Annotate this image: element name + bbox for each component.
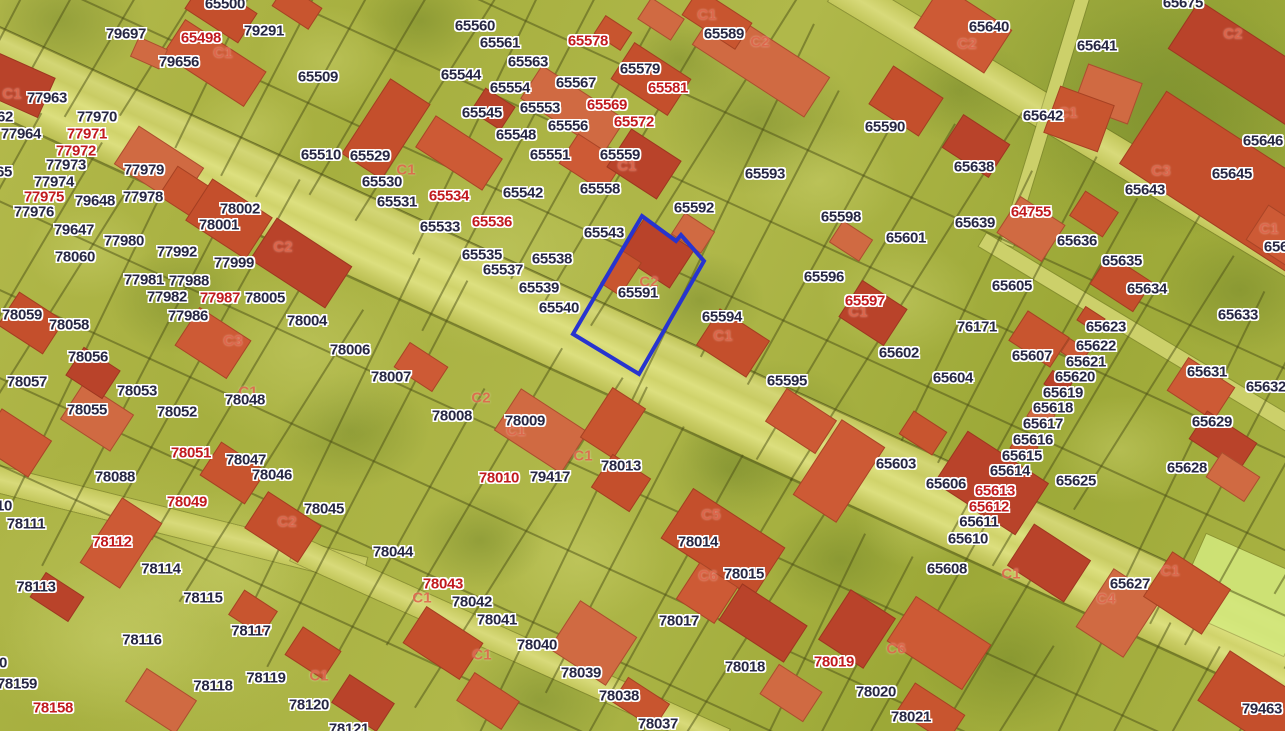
parcel-label-79463[interactable]: 79463 bbox=[1242, 701, 1282, 718]
parcel-label-10[interactable]: 10 bbox=[0, 498, 12, 515]
parcel-label-65558[interactable]: 65558 bbox=[580, 181, 620, 198]
parcel-label-65604[interactable]: 65604 bbox=[933, 370, 973, 387]
parcel-label-78059[interactable]: 78059 bbox=[2, 307, 42, 324]
cadastral-map-canvas[interactable]: C1C1C2C3C1C2C1C1C1C1C2C2C1C1C2C1C1C1C1C5… bbox=[0, 0, 1285, 731]
parcel-label-78158[interactable]: 78158 bbox=[33, 700, 73, 717]
parcel-label-65638[interactable]: 65638 bbox=[954, 159, 994, 176]
parcel-label-65567[interactable]: 65567 bbox=[556, 75, 596, 92]
parcel-label-65540[interactable]: 65540 bbox=[539, 300, 579, 317]
parcel-label-65563[interactable]: 65563 bbox=[508, 54, 548, 71]
parcel-label-65616[interactable]: 65616 bbox=[1013, 432, 1053, 449]
parcel-label-65595[interactable]: 65595 bbox=[767, 373, 807, 390]
parcel-label-65598[interactable]: 65598 bbox=[821, 209, 861, 226]
parcel-label-65645[interactable]: 65645 bbox=[1212, 166, 1252, 183]
parcel-label-65559[interactable]: 65559 bbox=[600, 147, 640, 164]
parcel-label-65594[interactable]: 65594 bbox=[702, 309, 742, 326]
parcel-label-65607[interactable]: 65607 bbox=[1012, 348, 1052, 365]
parcel-label-78015[interactable]: 78015 bbox=[724, 566, 764, 583]
parcel-label-78006[interactable]: 78006 bbox=[330, 342, 370, 359]
parcel-label-65589[interactable]: 65589 bbox=[704, 26, 744, 43]
parcel-label-65631[interactable]: 65631 bbox=[1187, 364, 1227, 381]
parcel-label-65643[interactable]: 65643 bbox=[1125, 182, 1165, 199]
parcel-label-78111[interactable]: 78111 bbox=[7, 516, 46, 533]
parcel-label-78014[interactable]: 78014 bbox=[678, 534, 718, 551]
parcel-label-77982[interactable]: 77982 bbox=[147, 289, 187, 306]
parcel-label-77978[interactable]: 77978 bbox=[123, 189, 163, 206]
parcel-label-65579[interactable]: 65579 bbox=[620, 61, 660, 78]
parcel-label-65500[interactable]: 65500 bbox=[205, 0, 245, 13]
parcel-label-65636[interactable]: 65636 bbox=[1057, 233, 1097, 250]
parcel-label-65633[interactable]: 65633 bbox=[1218, 307, 1258, 324]
parcel-label-65623[interactable]: 65623 bbox=[1086, 319, 1126, 336]
parcel-label-65592[interactable]: 65592 bbox=[674, 200, 714, 217]
parcel-label-65578[interactable]: 65578 bbox=[568, 33, 608, 50]
parcel-label-78159[interactable]: 78159 bbox=[0, 676, 37, 693]
parcel-label-65529[interactable]: 65529 bbox=[350, 148, 390, 165]
parcel-label-78116[interactable]: 78116 bbox=[122, 632, 161, 649]
parcel-label-78088[interactable]: 78088 bbox=[95, 469, 135, 486]
parcel-label-65536[interactable]: 65536 bbox=[472, 214, 512, 231]
parcel-label-78045[interactable]: 78045 bbox=[304, 501, 344, 518]
parcel-label-78037[interactable]: 78037 bbox=[638, 716, 678, 731]
parcel-label-65597[interactable]: 65597 bbox=[845, 293, 885, 310]
parcel-label-78055[interactable]: 78055 bbox=[67, 402, 107, 419]
parcel-label-65602[interactable]: 65602 bbox=[879, 345, 919, 362]
parcel-label-65498[interactable]: 65498 bbox=[181, 30, 221, 47]
parcel-label-62[interactable]: 62 bbox=[0, 109, 13, 126]
parcel-label-65618[interactable]: 65618 bbox=[1033, 400, 1073, 417]
parcel-label-77973[interactable]: 77973 bbox=[46, 157, 86, 174]
parcel-label-65622[interactable]: 65622 bbox=[1076, 338, 1116, 355]
parcel-label-78120[interactable]: 78120 bbox=[289, 697, 329, 714]
parcel-label-78118[interactable]: 78118 bbox=[193, 678, 232, 695]
parcel-label-65646[interactable]: 65646 bbox=[1243, 133, 1283, 150]
parcel-label-78009[interactable]: 78009 bbox=[505, 413, 545, 430]
parcel-label-78052[interactable]: 78052 bbox=[157, 404, 197, 421]
parcel-label-65608[interactable]: 65608 bbox=[927, 561, 967, 578]
parcel-label-78119[interactable]: 78119 bbox=[246, 670, 285, 687]
parcel-label-78117[interactable]: 78117 bbox=[231, 623, 270, 640]
parcel-label-65591[interactable]: 65591 bbox=[618, 285, 658, 302]
parcel-label-78043[interactable]: 78043 bbox=[423, 576, 463, 593]
parcel-label-78007[interactable]: 78007 bbox=[371, 369, 411, 386]
parcel-label-78046[interactable]: 78046 bbox=[252, 467, 292, 484]
parcel-label-65617[interactable]: 65617 bbox=[1023, 416, 1063, 433]
parcel-label-65641[interactable]: 65641 bbox=[1077, 38, 1117, 55]
parcel-label-65606[interactable]: 65606 bbox=[926, 476, 966, 493]
parcel-label-65545[interactable]: 65545 bbox=[462, 105, 502, 122]
parcel-label-78060[interactable]: 78060 bbox=[55, 249, 95, 266]
parcel-label-65625[interactable]: 65625 bbox=[1056, 473, 1096, 490]
parcel-label-77970[interactable]: 77970 bbox=[77, 109, 117, 126]
parcel-label-79648[interactable]: 79648 bbox=[75, 193, 115, 210]
parcel-label-65629[interactable]: 65629 bbox=[1192, 414, 1232, 431]
parcel-label-77980[interactable]: 77980 bbox=[104, 233, 144, 250]
parcel-label-65614[interactable]: 65614 bbox=[990, 463, 1030, 480]
parcel-label-65603[interactable]: 65603 bbox=[876, 456, 916, 473]
parcel-label-656[interactable]: 656 bbox=[1264, 239, 1285, 256]
parcel-label-65539[interactable]: 65539 bbox=[519, 280, 559, 297]
parcel-label-78040[interactable]: 78040 bbox=[517, 637, 557, 654]
parcel-label-78112[interactable]: 78112 bbox=[92, 534, 131, 551]
parcel-label-65543[interactable]: 65543 bbox=[584, 225, 624, 242]
parcel-label-65639[interactable]: 65639 bbox=[955, 215, 995, 232]
parcel-label-65635[interactable]: 65635 bbox=[1102, 253, 1142, 270]
parcel-label-65561[interactable]: 65561 bbox=[480, 35, 520, 52]
parcel-label-65620[interactable]: 65620 bbox=[1055, 369, 1095, 386]
parcel-label-65605[interactable]: 65605 bbox=[992, 278, 1032, 295]
parcel-label-78048[interactable]: 78048 bbox=[225, 392, 265, 409]
parcel-label-78051[interactable]: 78051 bbox=[171, 445, 211, 462]
parcel-label-65553[interactable]: 65553 bbox=[520, 100, 560, 117]
parcel-label-78041[interactable]: 78041 bbox=[477, 612, 517, 629]
parcel-label-65627[interactable]: 65627 bbox=[1110, 576, 1150, 593]
parcel-label-65537[interactable]: 65537 bbox=[483, 262, 523, 279]
parcel-label-77987[interactable]: 77987 bbox=[200, 290, 240, 307]
parcel-label-65590[interactable]: 65590 bbox=[865, 119, 905, 136]
parcel-label-65632[interactable]: 65632 bbox=[1246, 379, 1285, 396]
parcel-label-65572[interactable]: 65572 bbox=[614, 114, 654, 131]
parcel-label-78017[interactable]: 78017 bbox=[659, 613, 699, 630]
parcel-label-79647[interactable]: 79647 bbox=[54, 222, 94, 239]
parcel-label-65538[interactable]: 65538 bbox=[532, 251, 572, 268]
parcel-label-65675[interactable]: 65675 bbox=[1163, 0, 1203, 12]
parcel-label-77963[interactable]: 77963 bbox=[27, 90, 67, 107]
parcel-label-0[interactable]: 0 bbox=[0, 655, 7, 672]
parcel-label-79291[interactable]: 79291 bbox=[244, 23, 284, 40]
parcel-label-65551[interactable]: 65551 bbox=[530, 147, 570, 164]
parcel-label-64755[interactable]: 64755 bbox=[1011, 204, 1051, 221]
parcel-label-65534[interactable]: 65534 bbox=[429, 188, 469, 205]
parcel-label-65544[interactable]: 65544 bbox=[441, 67, 481, 84]
parcel-label-78057[interactable]: 78057 bbox=[7, 374, 47, 391]
parcel-label-65556[interactable]: 65556 bbox=[548, 118, 588, 135]
parcel-label-77981[interactable]: 77981 bbox=[124, 272, 164, 289]
parcel-label-65611[interactable]: 65611 bbox=[959, 514, 998, 531]
parcel-label-65628[interactable]: 65628 bbox=[1167, 460, 1207, 477]
parcel-label-78013[interactable]: 78013 bbox=[601, 458, 641, 475]
parcel-label-65601[interactable]: 65601 bbox=[886, 230, 926, 247]
parcel-label-77986[interactable]: 77986 bbox=[168, 308, 208, 325]
parcel-label-78053[interactable]: 78053 bbox=[117, 383, 157, 400]
parcel-label-79417[interactable]: 79417 bbox=[530, 469, 570, 486]
parcel-label-79697[interactable]: 79697 bbox=[106, 26, 146, 43]
parcel-label-65642[interactable]: 65642 bbox=[1023, 108, 1063, 125]
parcel-label-65509[interactable]: 65509 bbox=[298, 69, 338, 86]
parcel-label-65[interactable]: 65 bbox=[0, 164, 12, 181]
parcel-label-78018[interactable]: 78018 bbox=[725, 659, 765, 676]
parcel-label-78005[interactable]: 78005 bbox=[245, 290, 285, 307]
parcel-label-78115[interactable]: 78115 bbox=[183, 590, 222, 607]
parcel-labels-layer: 6550079697654987929179656655097796362779… bbox=[0, 0, 1285, 731]
parcel-label-77979[interactable]: 77979 bbox=[124, 162, 164, 179]
parcel-label-78121[interactable]: 78121 bbox=[329, 721, 369, 731]
parcel-label-78114[interactable]: 78114 bbox=[141, 561, 180, 578]
parcel-label-65560[interactable]: 65560 bbox=[455, 18, 495, 35]
parcel-label-65634[interactable]: 65634 bbox=[1127, 281, 1167, 298]
parcel-label-65569[interactable]: 65569 bbox=[587, 97, 627, 114]
parcel-label-77988[interactable]: 77988 bbox=[169, 273, 209, 290]
parcel-label-65530[interactable]: 65530 bbox=[362, 174, 402, 191]
parcel-label-79656[interactable]: 79656 bbox=[159, 54, 199, 71]
parcel-label-65640[interactable]: 65640 bbox=[969, 19, 1009, 36]
parcel-label-65613[interactable]: 65613 bbox=[975, 483, 1015, 500]
parcel-label-77971[interactable]: 77971 bbox=[67, 126, 107, 143]
parcel-label-78008[interactable]: 78008 bbox=[432, 408, 472, 425]
parcel-label-78042[interactable]: 78042 bbox=[452, 594, 492, 611]
parcel-label-65596[interactable]: 65596 bbox=[804, 269, 844, 286]
parcel-label-77992[interactable]: 77992 bbox=[157, 244, 197, 261]
parcel-label-78049[interactable]: 78049 bbox=[167, 494, 207, 511]
parcel-label-78038[interactable]: 78038 bbox=[599, 688, 639, 705]
parcel-label-65542[interactable]: 65542 bbox=[503, 185, 543, 202]
parcel-label-65533[interactable]: 65533 bbox=[420, 219, 460, 236]
parcel-label-78019[interactable]: 78019 bbox=[814, 654, 854, 671]
parcel-label-77964[interactable]: 77964 bbox=[1, 126, 41, 143]
parcel-label-65593[interactable]: 65593 bbox=[745, 166, 785, 183]
parcel-label-78020[interactable]: 78020 bbox=[856, 684, 896, 701]
parcel-label-77999[interactable]: 77999 bbox=[214, 255, 254, 272]
parcel-label-78021[interactable]: 78021 bbox=[891, 709, 931, 726]
parcel-label-78113[interactable]: 78113 bbox=[16, 579, 55, 596]
parcel-label-65548[interactable]: 65548 bbox=[496, 127, 536, 144]
parcel-label-78001[interactable]: 78001 bbox=[199, 217, 239, 234]
parcel-label-65554[interactable]: 65554 bbox=[490, 80, 530, 97]
parcel-label-65531[interactable]: 65531 bbox=[377, 194, 417, 211]
parcel-label-65510[interactable]: 65510 bbox=[301, 147, 341, 164]
parcel-label-78044[interactable]: 78044 bbox=[373, 544, 413, 561]
parcel-label-65581[interactable]: 65581 bbox=[648, 80, 688, 97]
parcel-label-77976[interactable]: 77976 bbox=[14, 204, 54, 221]
parcel-label-78010[interactable]: 78010 bbox=[479, 470, 519, 487]
parcel-label-76171[interactable]: 76171 bbox=[957, 319, 997, 336]
parcel-label-78002[interactable]: 78002 bbox=[220, 201, 260, 218]
parcel-label-65610[interactable]: 65610 bbox=[948, 531, 988, 548]
parcel-label-78004[interactable]: 78004 bbox=[287, 313, 327, 330]
parcel-label-78056[interactable]: 78056 bbox=[68, 349, 108, 366]
parcel-label-78039[interactable]: 78039 bbox=[561, 665, 601, 682]
parcel-label-78058[interactable]: 78058 bbox=[49, 317, 89, 334]
